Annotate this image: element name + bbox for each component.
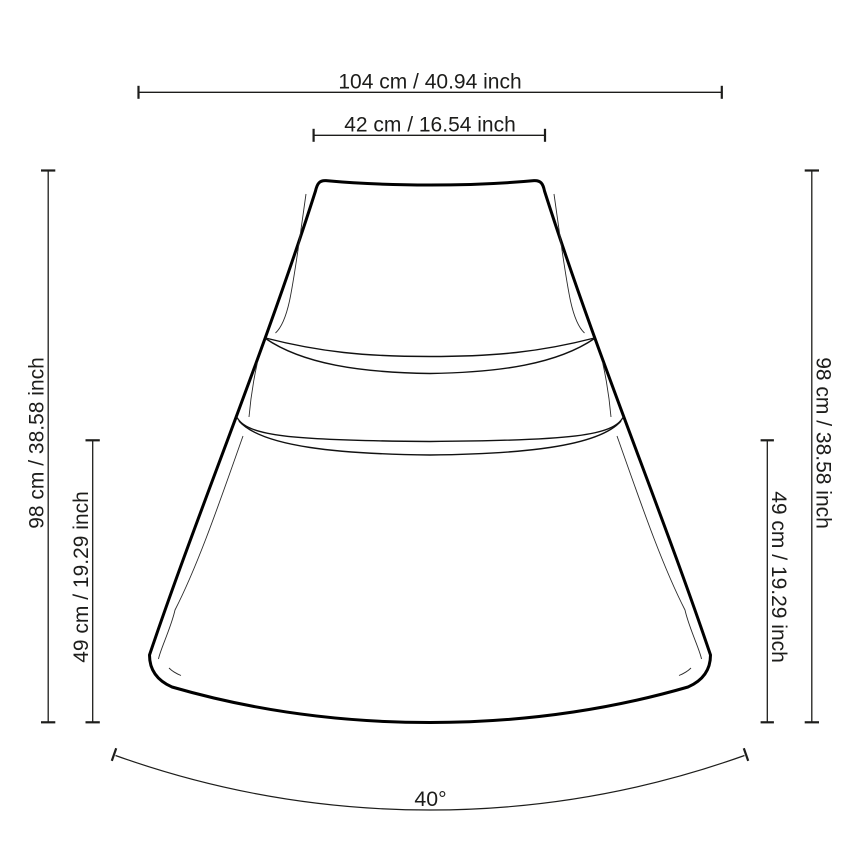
svg-text:49 cm / 19.29 inch: 49 cm / 19.29 inch [70,491,93,663]
svg-text:42 cm / 16.54 inch: 42 cm / 16.54 inch [344,113,516,136]
svg-text:49 cm / 19.29 inch: 49 cm / 19.29 inch [767,491,790,663]
svg-text:98 cm / 38.58 inch: 98 cm / 38.58 inch [26,357,49,529]
svg-text:40°: 40° [414,787,446,811]
svg-text:104 cm / 40.94 inch: 104 cm / 40.94 inch [338,71,521,94]
svg-text:98 cm / 38.58 inch: 98 cm / 38.58 inch [811,357,834,529]
